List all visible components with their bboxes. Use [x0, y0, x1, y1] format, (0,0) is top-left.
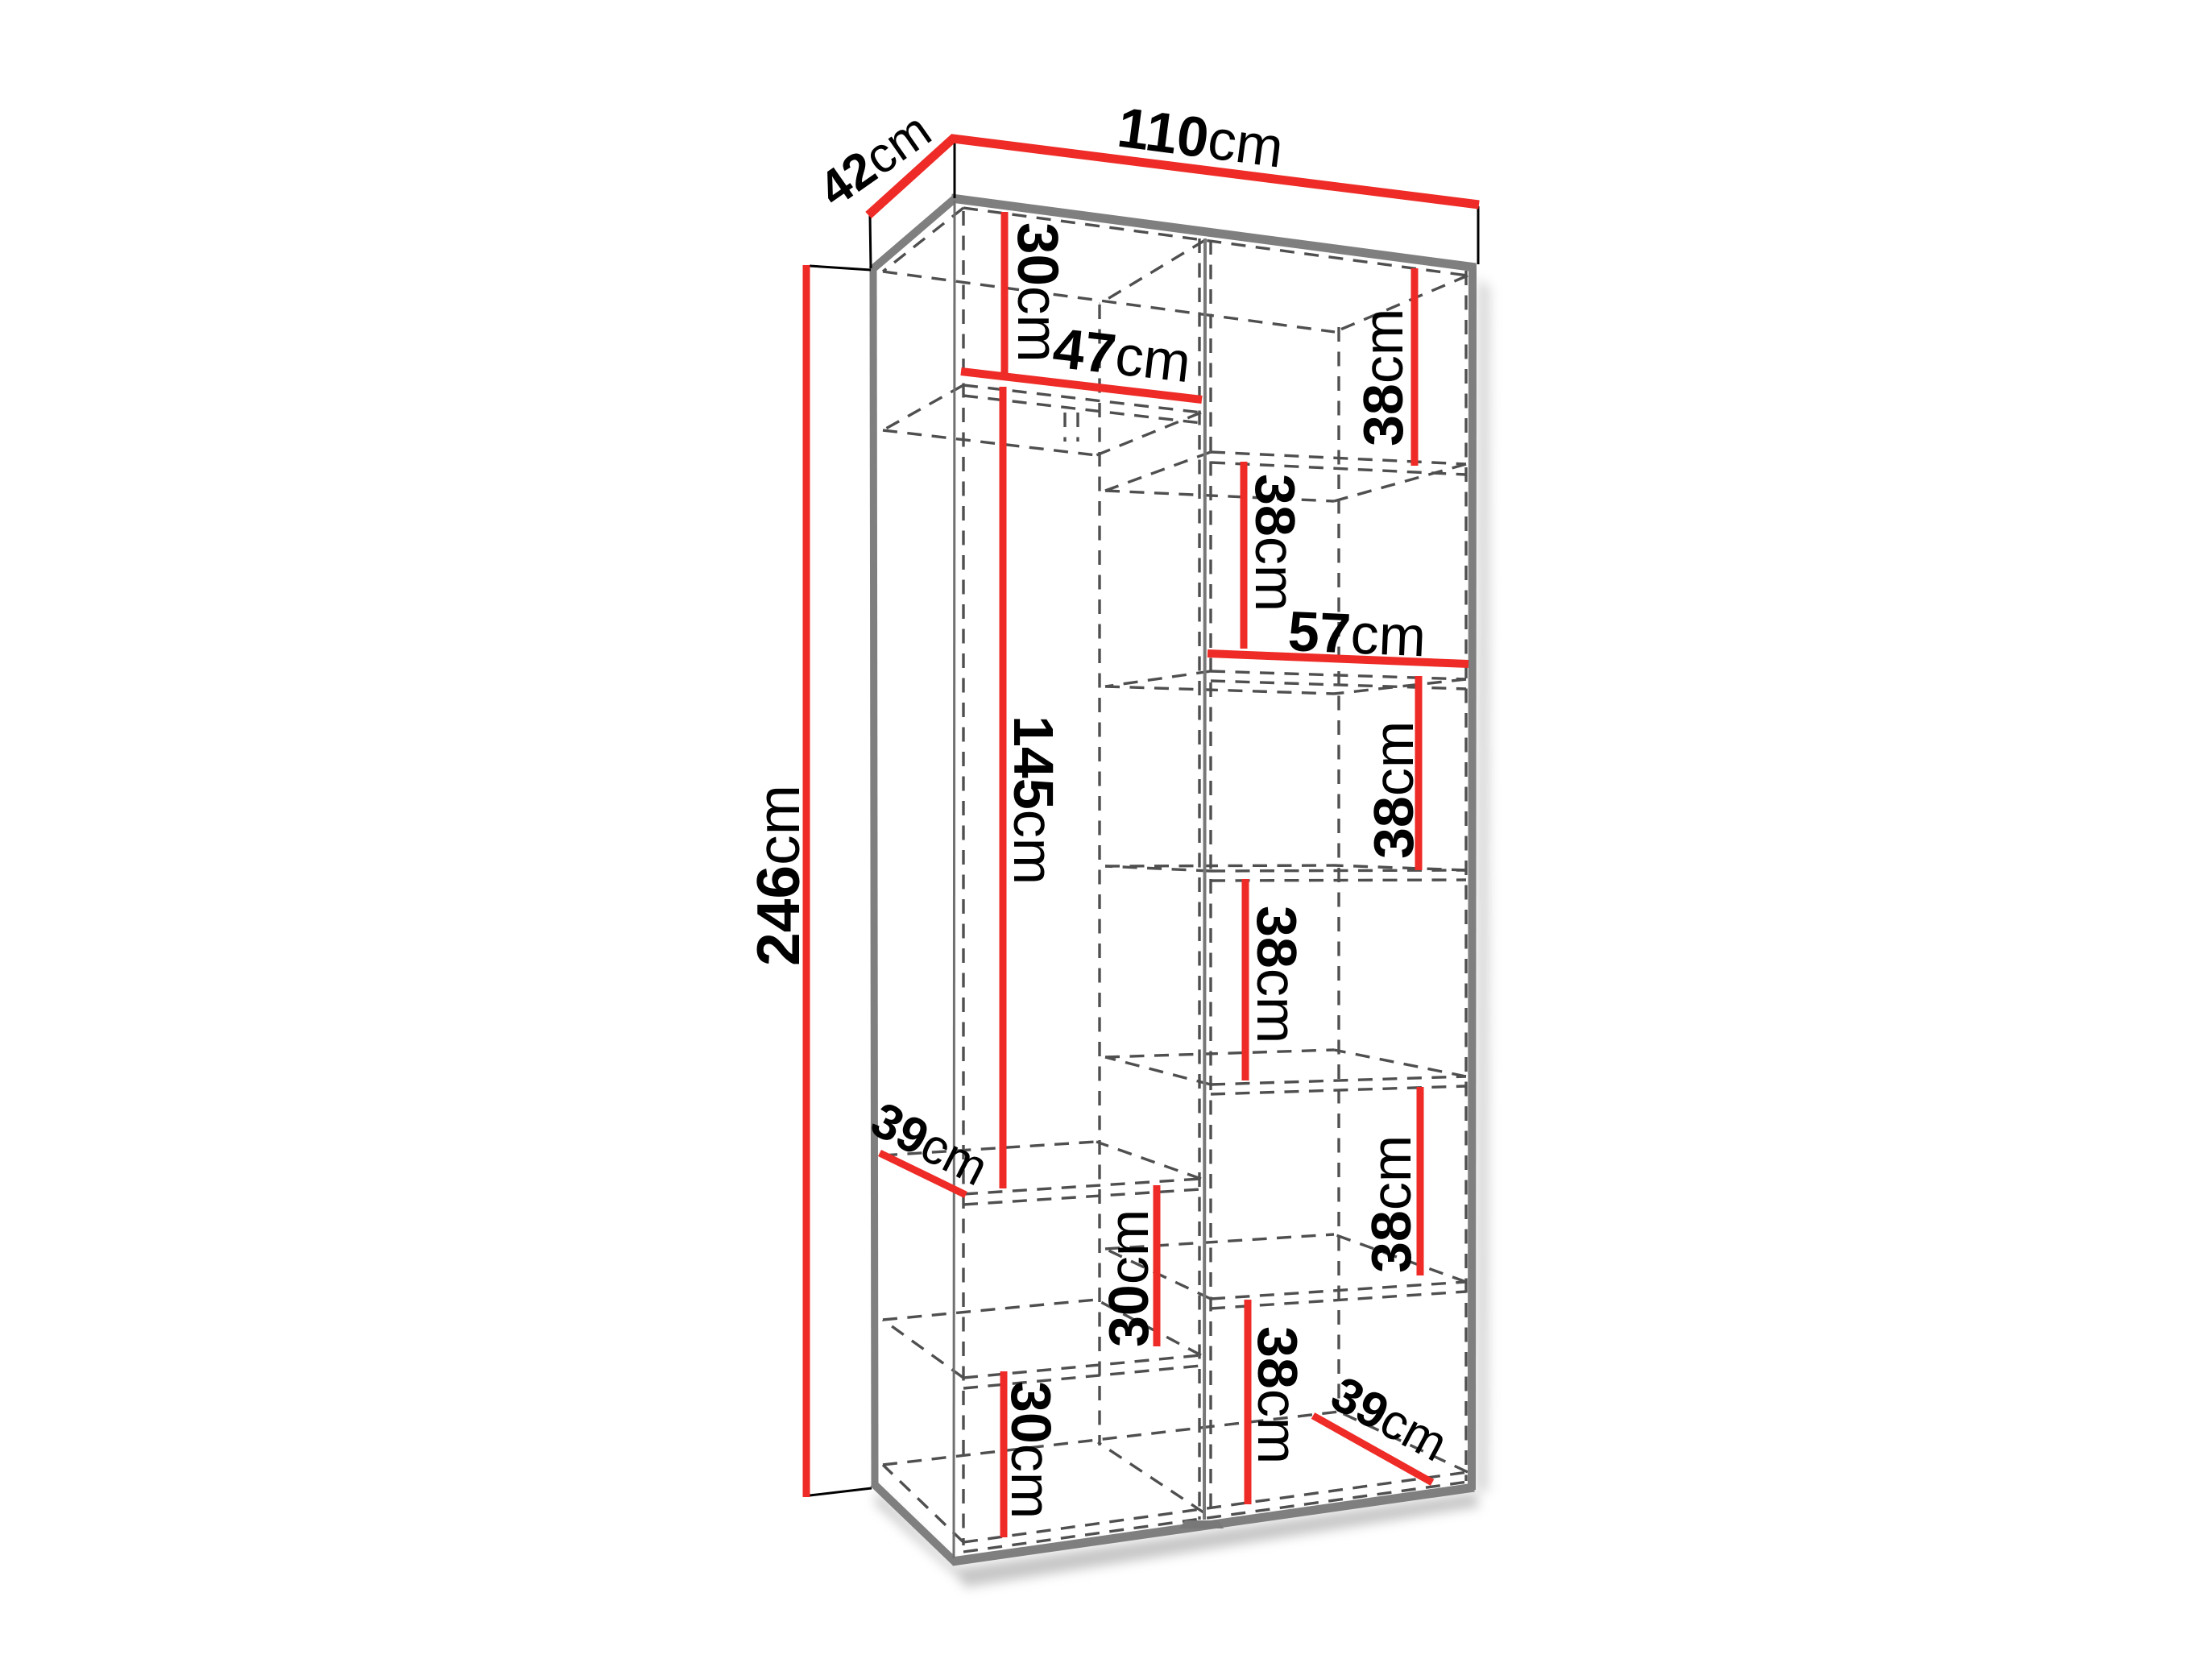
svg-text:246cm: 246cm — [744, 785, 812, 966]
svg-text:38cm: 38cm — [1362, 721, 1425, 859]
svg-text:30cm: 30cm — [1097, 1209, 1160, 1347]
svg-text:145cm: 145cm — [1002, 715, 1065, 885]
svg-text:110cm: 110cm — [1114, 96, 1287, 180]
svg-text:42cm: 42cm — [809, 102, 941, 218]
svg-text:38cm: 38cm — [1246, 1326, 1309, 1464]
svg-text:38cm: 38cm — [1244, 474, 1307, 612]
svg-text:38cm: 38cm — [1360, 1135, 1423, 1273]
svg-text:57cm: 57cm — [1286, 599, 1427, 668]
svg-text:38cm: 38cm — [1352, 309, 1415, 446]
svg-text:38cm: 38cm — [1245, 906, 1308, 1043]
svg-text:30cm: 30cm — [1000, 1381, 1063, 1519]
